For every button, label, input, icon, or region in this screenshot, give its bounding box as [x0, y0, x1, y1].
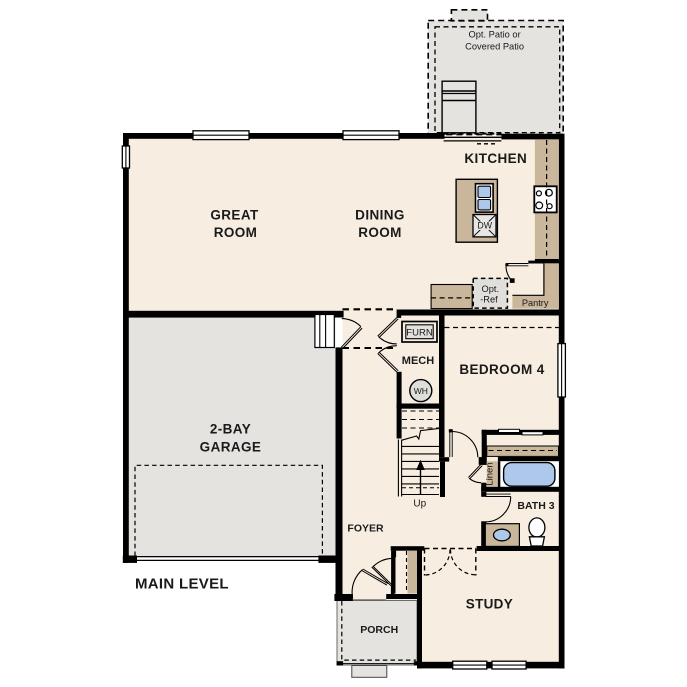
svg-text:Covered Patio: Covered Patio: [465, 42, 524, 52]
svg-text:ROOM: ROOM: [214, 225, 258, 240]
svg-text:GARAGE: GARAGE: [200, 440, 262, 455]
svg-text:Opt.: Opt.: [482, 284, 500, 294]
svg-text:MECH: MECH: [402, 355, 434, 367]
svg-text:FURN: FURN: [406, 328, 433, 339]
svg-text:STUDY: STUDY: [466, 597, 513, 612]
svg-text:Pantry: Pantry: [522, 298, 549, 308]
svg-text:GREAT: GREAT: [210, 207, 259, 222]
svg-text:ROOM: ROOM: [358, 225, 402, 240]
svg-text:MAIN LEVEL: MAIN LEVEL: [135, 576, 229, 593]
svg-text:WH: WH: [414, 386, 428, 396]
svg-text:PORCH: PORCH: [360, 624, 398, 636]
svg-text:FOYER: FOYER: [347, 523, 384, 535]
svg-text:Linen: Linen: [485, 462, 496, 485]
svg-text:BEDROOM 4: BEDROOM 4: [459, 362, 544, 377]
svg-text:KITCHEN: KITCHEN: [464, 151, 527, 166]
svg-text:DINING: DINING: [355, 207, 405, 222]
svg-text:Opt. Patio or: Opt. Patio or: [468, 30, 520, 40]
svg-text:DW: DW: [477, 221, 492, 231]
svg-text:Up: Up: [413, 499, 426, 510]
svg-text:-Ref: -Ref: [480, 295, 498, 305]
svg-text:2-BAY: 2-BAY: [210, 422, 251, 437]
svg-text:BATH 3: BATH 3: [517, 500, 554, 512]
